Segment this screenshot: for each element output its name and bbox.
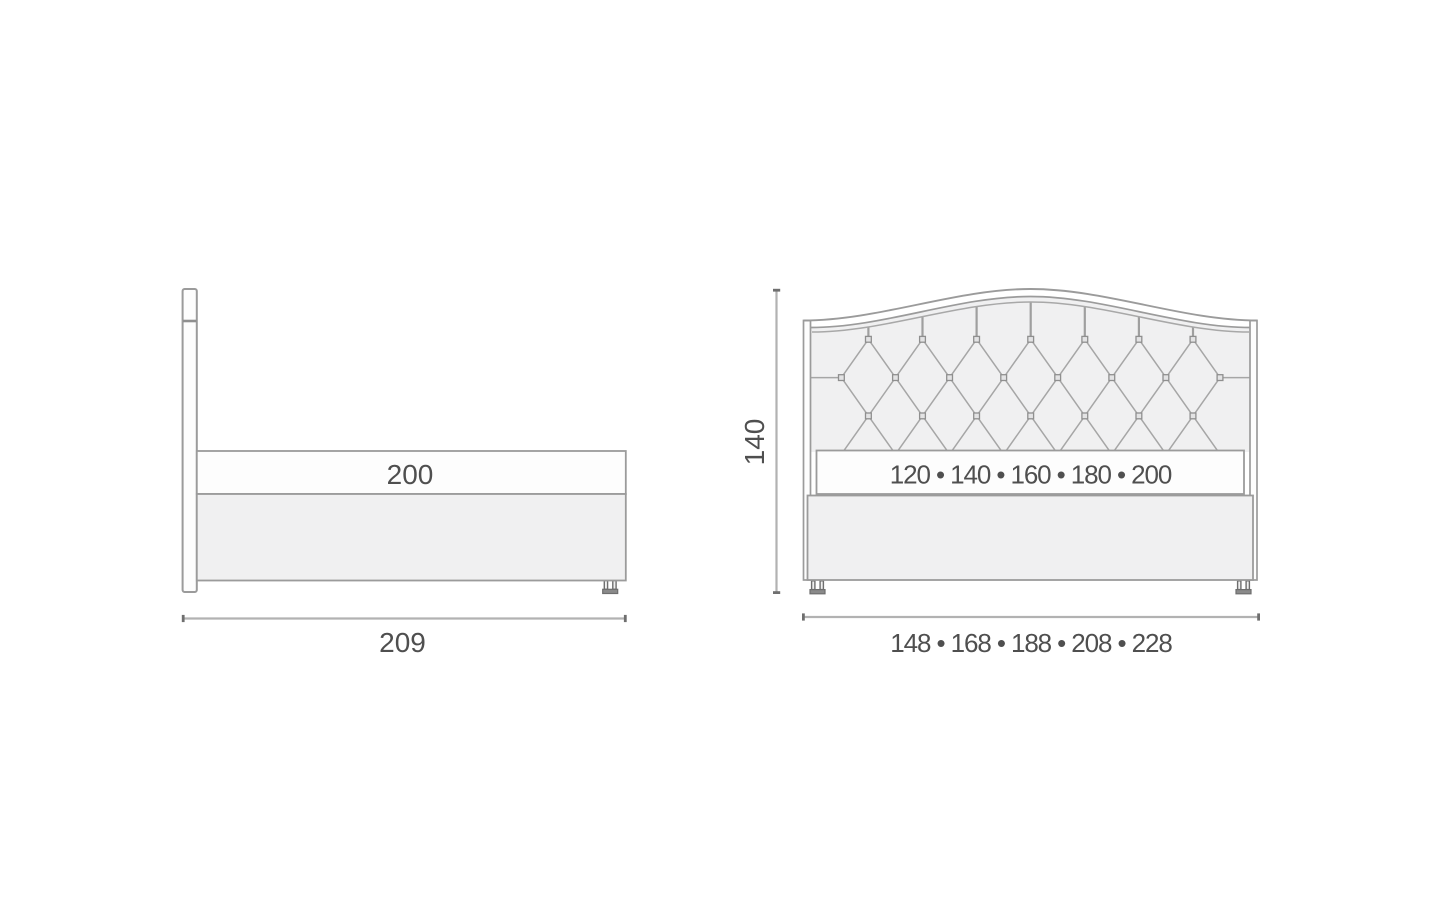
svg-text:140: 140	[739, 419, 770, 466]
svg-text:209: 209	[379, 627, 426, 658]
svg-text:200: 200	[387, 459, 434, 490]
svg-text:148 • 168 • 188 • 208 • 228: 148 • 168 • 188 • 208 • 228	[890, 628, 1172, 658]
svg-text:120 • 140 • 160 • 180 • 200: 120 • 140 • 160 • 180 • 200	[890, 460, 1172, 490]
